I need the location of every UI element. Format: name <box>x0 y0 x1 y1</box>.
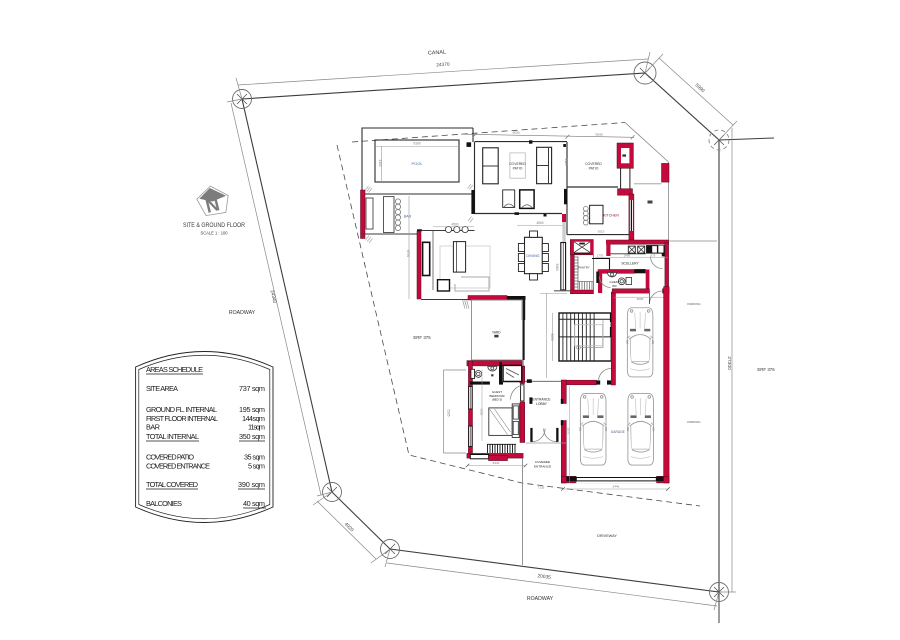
svg-text:5990: 5990 <box>694 82 706 94</box>
svg-text:7135: 7135 <box>538 486 545 490</box>
svg-text:5305: 5305 <box>447 409 451 416</box>
svg-text:20035: 20035 <box>537 573 551 581</box>
svg-text:2075: 2075 <box>566 428 570 435</box>
svg-text:SCULLERY: SCULLERY <box>621 262 639 266</box>
svg-text:PARKING: PARKING <box>687 420 701 424</box>
svg-text:9030: 9030 <box>512 131 519 135</box>
svg-text:DRIVEWAY: DRIVEWAY <box>597 534 617 538</box>
svg-text:ERF 376: ERF 376 <box>757 367 775 372</box>
svg-text:DINING: DINING <box>526 254 539 258</box>
svg-text:390 sqm: 390 sqm <box>238 480 265 489</box>
svg-text:4100: 4100 <box>378 159 382 166</box>
svg-text:4500: 4500 <box>451 223 458 227</box>
svg-text:ROADWAY: ROADWAY <box>229 310 256 316</box>
svg-text:CANAL: CANAL <box>428 49 446 56</box>
svg-text:ROADWAY: ROADWAY <box>527 596 554 602</box>
svg-text:35 sqm: 35 sqm <box>244 453 265 462</box>
svg-text:YARD: YARD <box>492 331 501 335</box>
svg-text:COVERED PATIO: COVERED PATIO <box>146 453 194 462</box>
svg-text:737 sqm: 737 sqm <box>239 384 265 393</box>
svg-text:11sqm: 11sqm <box>248 423 265 432</box>
svg-text:PATIO: PATIO <box>513 167 523 171</box>
svg-text:SCALE 1 : 100: SCALE 1 : 100 <box>201 231 229 236</box>
svg-text:2400: 2400 <box>624 254 631 258</box>
svg-text:5 sqm: 5 sqm <box>248 462 265 471</box>
svg-text:1775: 1775 <box>597 254 604 258</box>
svg-text:WC: WC <box>612 284 617 288</box>
svg-text:COVERED: COVERED <box>585 162 602 166</box>
svg-text:ENTRANCE: ENTRANCE <box>534 464 551 468</box>
svg-text:3550: 3550 <box>550 333 554 340</box>
svg-text:PARKING: PARKING <box>687 302 701 306</box>
svg-text:BALCONIES: BALCONIES <box>146 499 182 508</box>
svg-text:3015: 3015 <box>598 230 605 234</box>
svg-text:AREAS SCHEDULE: AREAS SCHEDULE <box>146 365 203 374</box>
svg-text:350 sqm: 350 sqm <box>239 432 265 441</box>
svg-text:COVERED ENTRANCE: COVERED ENTRANCE <box>146 462 210 471</box>
svg-text:PATIO: PATIO <box>589 167 599 171</box>
svg-text:8440: 8440 <box>493 461 500 465</box>
svg-text:3000: 3000 <box>637 297 644 301</box>
svg-text:9100: 9100 <box>413 142 420 146</box>
svg-text:3460: 3460 <box>555 263 559 270</box>
svg-text:PANTRY: PANTRY <box>578 266 590 270</box>
svg-text:TOTAL COVERED: TOTAL COVERED <box>146 480 198 489</box>
svg-text:27300: 27300 <box>726 356 732 370</box>
svg-text:6750: 6750 <box>406 250 410 257</box>
svg-text:TOTAL INTERNAL: TOTAL INTERNAL <box>146 432 199 441</box>
svg-text:KITCHEN: KITCHEN <box>603 214 619 218</box>
svg-text:195 sqm: 195 sqm <box>239 405 265 414</box>
svg-text:5550: 5550 <box>480 409 484 416</box>
svg-text:SITE & GROUND FLOOR: SITE & GROUND FLOOR <box>183 222 245 229</box>
svg-text:LOBBY: LOBBY <box>536 402 548 406</box>
svg-text:675: 675 <box>651 254 656 258</box>
svg-text:5040: 5040 <box>595 133 602 137</box>
svg-text:BAR: BAR <box>146 423 160 432</box>
svg-text:COVERED: COVERED <box>509 162 526 166</box>
svg-text:SITE AREA: SITE AREA <box>146 384 178 393</box>
svg-text:5440: 5440 <box>613 485 620 489</box>
svg-text:GARAGE: GARAGE <box>611 430 626 434</box>
svg-text:GROUND FL. INTERNAL: GROUND FL. INTERNAL <box>146 405 217 414</box>
svg-text:24340: 24340 <box>269 290 278 305</box>
svg-text:ERF 375: ERF 375 <box>413 335 431 340</box>
svg-text:POOL: POOL <box>411 161 423 166</box>
svg-text:4500: 4500 <box>536 221 543 225</box>
svg-text:4920: 4920 <box>343 521 355 533</box>
svg-text:24370: 24370 <box>436 62 450 69</box>
svg-text:BAR: BAR <box>404 215 412 219</box>
svg-text:2110: 2110 <box>564 159 568 166</box>
svg-text:40 sqm: 40 sqm <box>243 499 265 508</box>
svg-text:(BED 5): (BED 5) <box>492 398 502 402</box>
